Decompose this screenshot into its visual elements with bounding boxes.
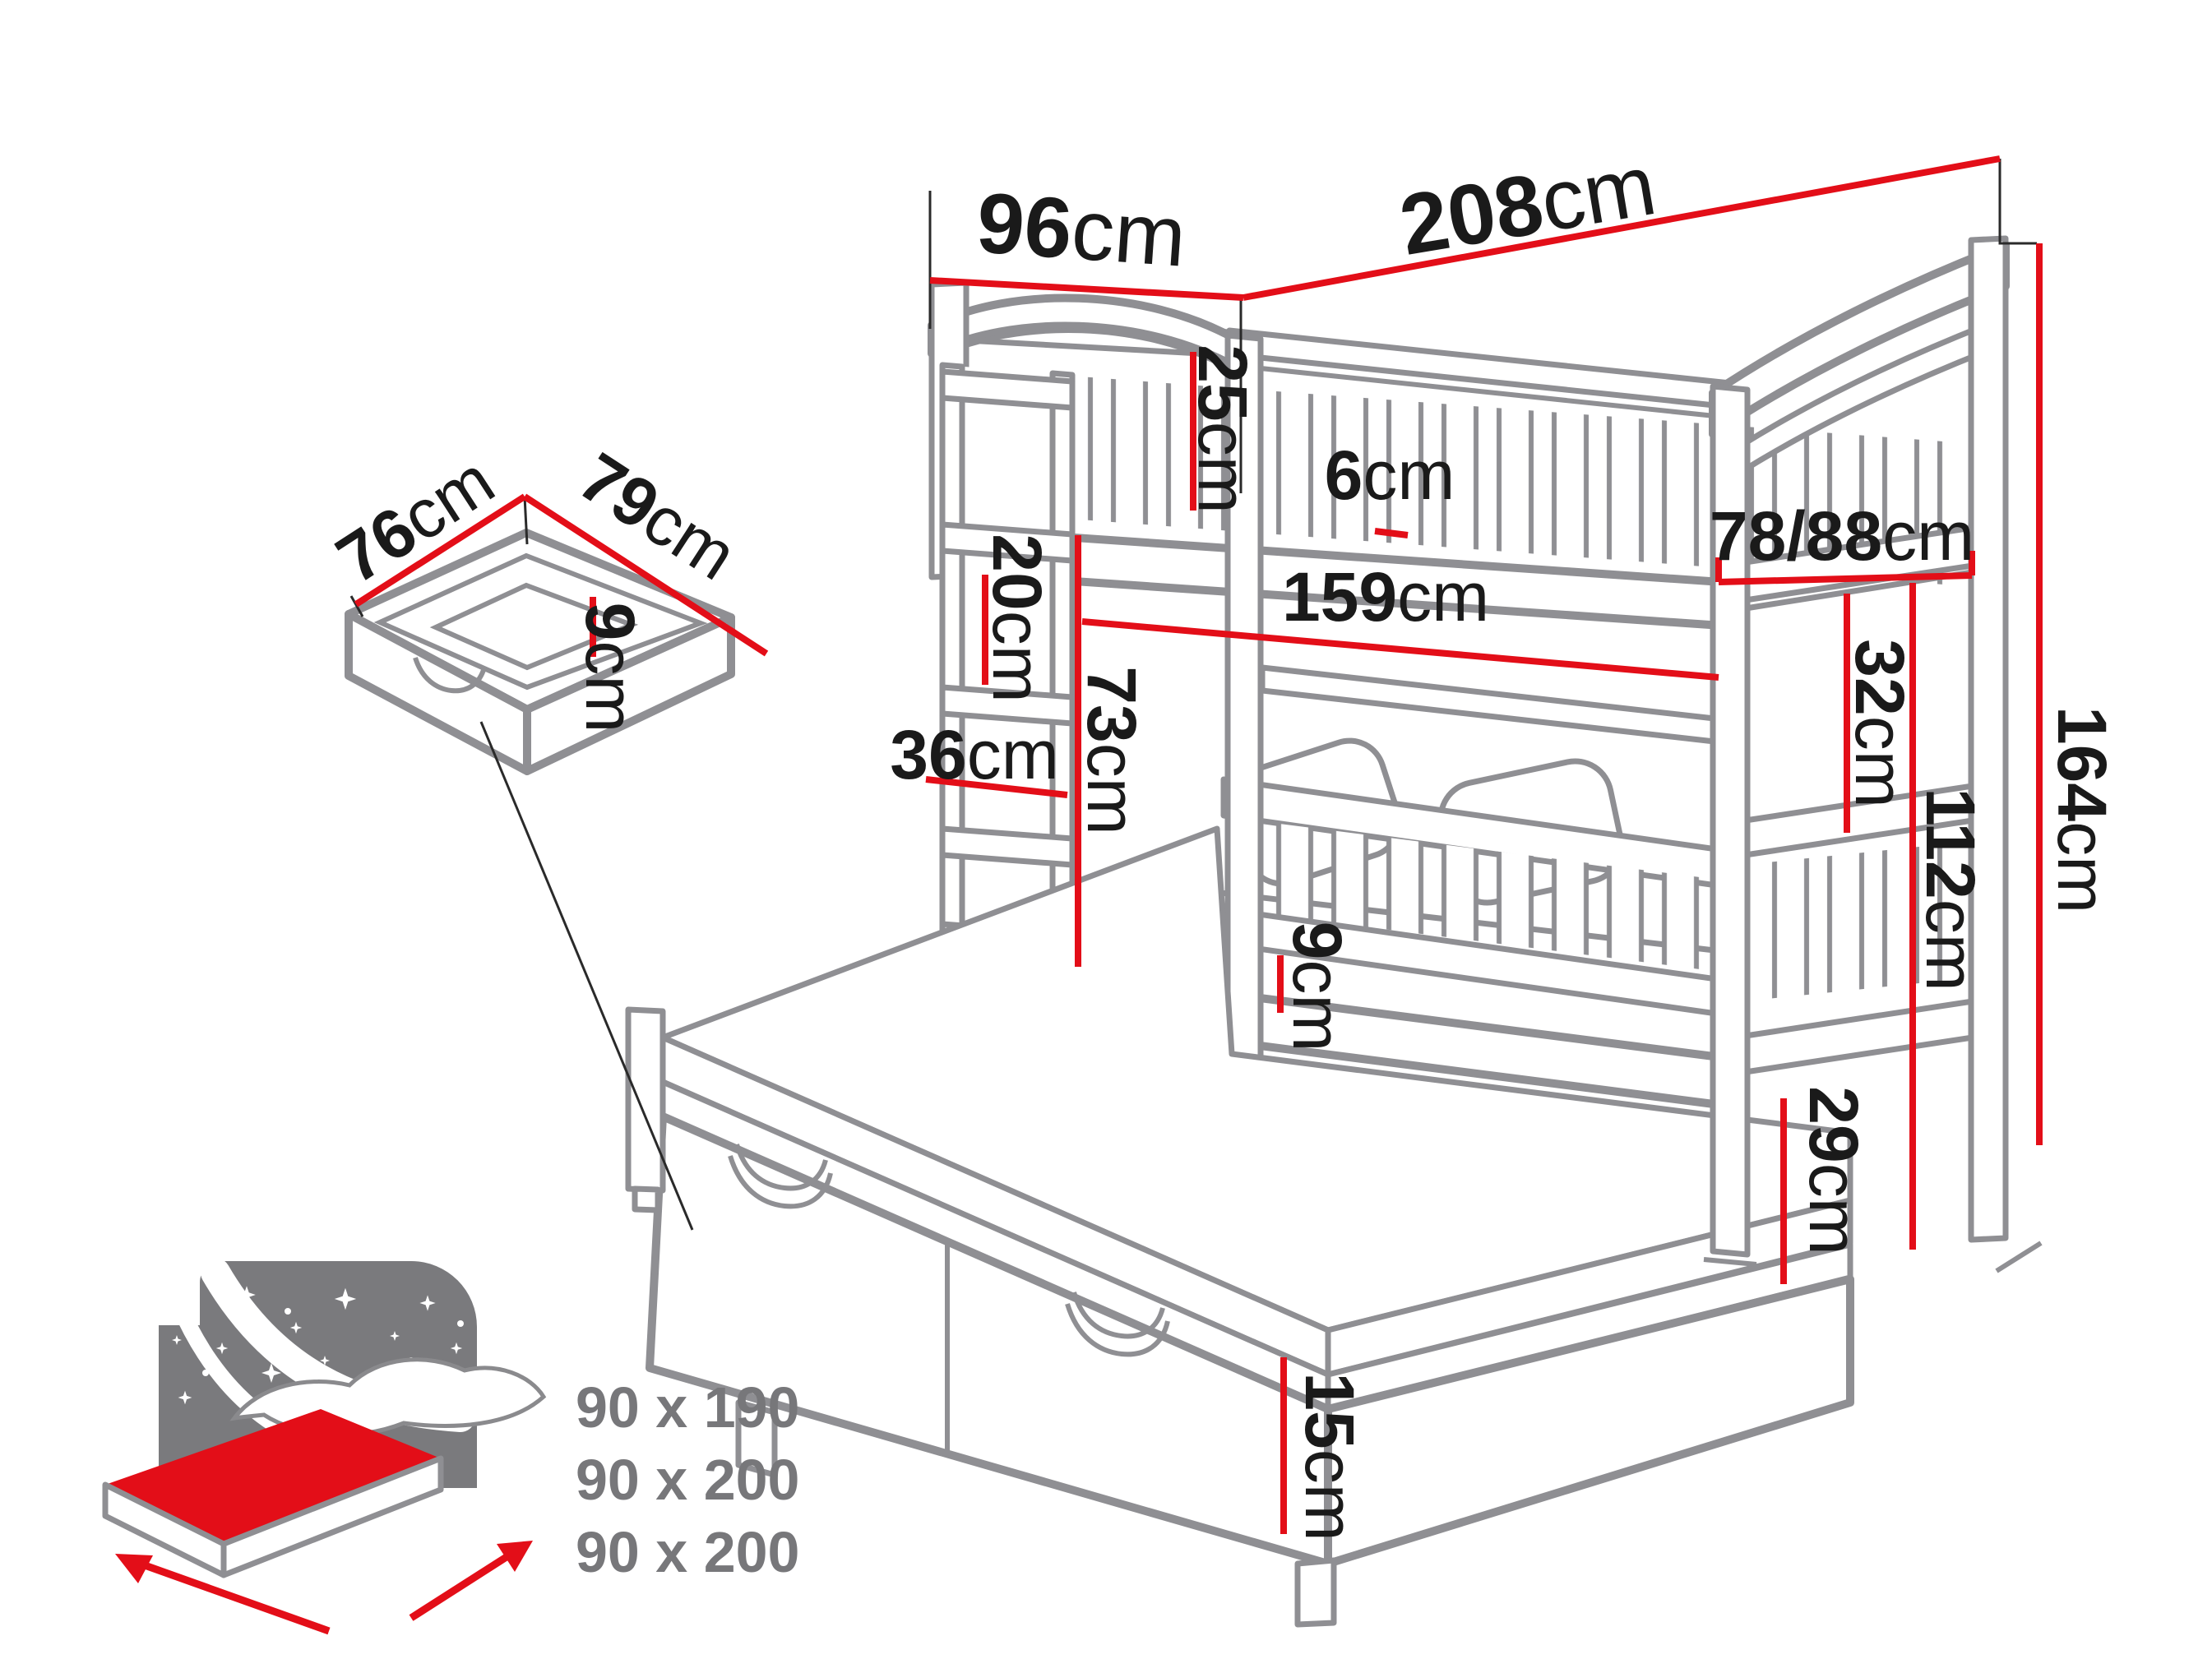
lower-rear-rail: [1262, 668, 1715, 742]
right-lower-rail-b: [1713, 996, 2005, 1077]
tick-208-right: [2000, 159, 2037, 243]
ladder-stile-left: [942, 365, 962, 951]
mattress-icon: [105, 1261, 544, 1631]
label-bunk-clearance: 73cm: [1073, 666, 1150, 834]
label-floor-clearance: 29cm: [1795, 1086, 1872, 1255]
right-rear-post: [1971, 238, 2006, 1240]
mattress-size-2: 90 x 200: [576, 1448, 799, 1512]
label-slat-gap: 6cm: [1325, 437, 1455, 514]
label-top-width: 96cm: [974, 175, 1189, 284]
label-top-length: 208cm: [1393, 137, 1662, 274]
trundle-rear-post-foot: [635, 1189, 658, 1210]
label-total-height: 164cm: [2043, 706, 2121, 913]
label-under-upper-height: 112cm: [1912, 788, 1989, 991]
label-shelf-spacing: 20cm: [979, 534, 1056, 702]
label-drawer-height: 9cm: [572, 603, 649, 733]
label-guardrail-height: 25cm: [1184, 344, 1261, 513]
floor-line-rear: [1997, 1243, 2041, 1271]
mattress-size-list: 90 x 190 90 x 200 90 x 200: [576, 1375, 799, 1584]
label-inner-length: 159cm: [1282, 558, 1489, 635]
bunk-bed-dimension-diagram: 90 x 190 90 x 200 90 x 200 96cm: [0, 0, 2212, 1659]
label-upper-panel-height: 32cm: [1841, 639, 1918, 807]
trundle-foot-2: [1298, 1560, 1334, 1624]
label-shelf-depth: 36cm: [890, 716, 1058, 793]
mattress-size-3: 90 x 200: [576, 1520, 799, 1584]
dimline-6: [1375, 531, 1408, 535]
label-trundle-side-height: 15cm: [1291, 1372, 1368, 1541]
label-rail-mattress-gap: 9cm: [1279, 922, 1356, 1052]
trundle-rear-post: [628, 1010, 663, 1190]
label-end-width: 78/88cm: [1710, 497, 1974, 575]
drawer-pointer-line: [481, 722, 692, 1230]
diagram-canvas: 90 x 190 90 x 200 90 x 200 96cm: [0, 0, 2212, 1659]
mattress-size-1: 90 x 190: [576, 1375, 799, 1439]
